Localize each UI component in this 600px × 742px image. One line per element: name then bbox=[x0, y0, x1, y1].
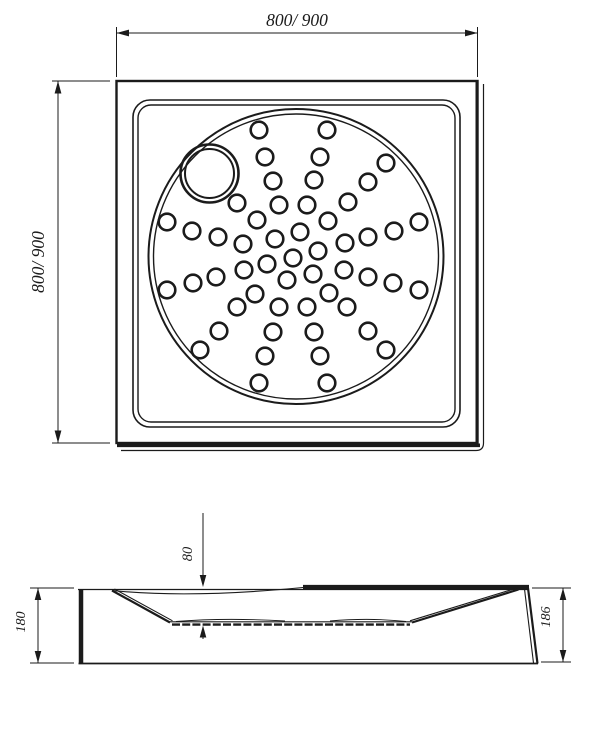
arrow-left-icon bbox=[117, 30, 130, 37]
floor-hole bbox=[265, 324, 282, 341]
depth-label: 80 bbox=[180, 546, 196, 561]
basin-sag-curve bbox=[112, 588, 303, 594]
right-slope-inner bbox=[410, 588, 516, 621]
floor-hole bbox=[312, 348, 329, 365]
floor-hole bbox=[336, 262, 353, 279]
floor-hole bbox=[235, 236, 252, 253]
floor-hole bbox=[312, 149, 329, 166]
floor-hole bbox=[159, 282, 176, 299]
arrow-up-icon bbox=[200, 626, 207, 638]
floor-hole bbox=[285, 250, 302, 267]
left-side-height-dimension: 180 bbox=[14, 588, 74, 663]
tray-flange-edge bbox=[121, 84, 484, 451]
floor-hole bbox=[251, 122, 268, 139]
floor-hole bbox=[257, 149, 274, 166]
floor-holes bbox=[159, 122, 428, 392]
floor-hole bbox=[320, 213, 337, 230]
floor-hole bbox=[319, 375, 336, 392]
floor-hole bbox=[208, 269, 225, 286]
arrow-up-icon bbox=[55, 81, 62, 94]
floor-hole bbox=[321, 285, 338, 302]
top-width-label: 800/ 900 bbox=[266, 10, 328, 30]
floor-hole bbox=[265, 173, 282, 190]
floor-hole bbox=[257, 348, 274, 365]
top-width-dimension: 800/ 900 bbox=[117, 10, 478, 77]
drain-circle-inner bbox=[185, 149, 234, 198]
arrow-down-icon bbox=[55, 431, 62, 444]
floor-hole bbox=[259, 256, 276, 273]
floor-hole bbox=[306, 324, 323, 341]
floor-hole bbox=[339, 299, 356, 316]
left-slope-outer bbox=[112, 591, 170, 623]
arrow-up-icon bbox=[35, 588, 42, 600]
floor-hole bbox=[279, 272, 296, 289]
floor-hole bbox=[360, 174, 377, 191]
floor-hole bbox=[192, 342, 209, 359]
floor-hole bbox=[271, 197, 288, 214]
floor-hole bbox=[159, 214, 176, 231]
floor-hole bbox=[267, 231, 284, 248]
extension-lines bbox=[117, 27, 478, 77]
floor-hole bbox=[340, 194, 357, 211]
arrow-right-icon bbox=[465, 30, 478, 37]
arrow-down-icon bbox=[35, 651, 42, 663]
right-side-height-label: 186 bbox=[539, 607, 554, 628]
technical-drawing: 800/ 900 800/ 900 bbox=[0, 0, 600, 742]
floor-hole bbox=[337, 235, 354, 252]
left-height-dimension: 800/ 900 bbox=[28, 81, 110, 443]
floor-hole bbox=[185, 275, 202, 292]
floor-hole bbox=[249, 212, 266, 229]
floor-hole bbox=[305, 266, 322, 283]
left-height-label: 800/ 900 bbox=[28, 231, 48, 293]
floor-hole bbox=[385, 275, 402, 292]
floor-hole bbox=[211, 323, 228, 340]
floor-hole bbox=[310, 243, 327, 260]
floor-hole bbox=[292, 224, 309, 241]
floor-hole bbox=[247, 286, 264, 303]
floor-hole bbox=[229, 195, 246, 212]
arrow-down-icon bbox=[560, 650, 567, 662]
floor-hole bbox=[360, 269, 377, 286]
floor-hole bbox=[378, 342, 395, 359]
floor-hole bbox=[386, 223, 403, 240]
floor-hole bbox=[251, 375, 268, 392]
floor-hole bbox=[229, 299, 246, 316]
floor-hole bbox=[299, 299, 316, 316]
floor-hole bbox=[236, 262, 253, 279]
floor-curve-right bbox=[330, 619, 406, 621]
floor-hole bbox=[306, 172, 323, 189]
right-side-height-dimension: 186 bbox=[532, 588, 571, 662]
arrow-up-icon bbox=[560, 588, 567, 600]
drawing-canvas: 800/ 900 800/ 900 bbox=[0, 0, 600, 742]
top-view: 800/ 900 800/ 900 bbox=[28, 10, 484, 451]
floor-hole bbox=[360, 229, 377, 246]
arrow-down-icon bbox=[200, 575, 207, 587]
left-side-height-label: 180 bbox=[14, 612, 29, 633]
floor-hole bbox=[210, 229, 227, 246]
floor-hole bbox=[411, 214, 428, 231]
floor-hole bbox=[271, 299, 288, 316]
floor-hole bbox=[184, 223, 201, 240]
floor-curve-left bbox=[176, 619, 285, 621]
right-slope-outer bbox=[412, 590, 519, 623]
floor-hole bbox=[378, 155, 395, 172]
extension-lines bbox=[52, 81, 110, 443]
floor-hole bbox=[360, 323, 377, 340]
drain-circle-outer bbox=[181, 145, 239, 203]
side-view: 80 180 186 bbox=[14, 513, 571, 664]
floor-hole bbox=[319, 122, 336, 139]
floor-hole bbox=[411, 282, 428, 299]
floor-hole bbox=[299, 197, 316, 214]
